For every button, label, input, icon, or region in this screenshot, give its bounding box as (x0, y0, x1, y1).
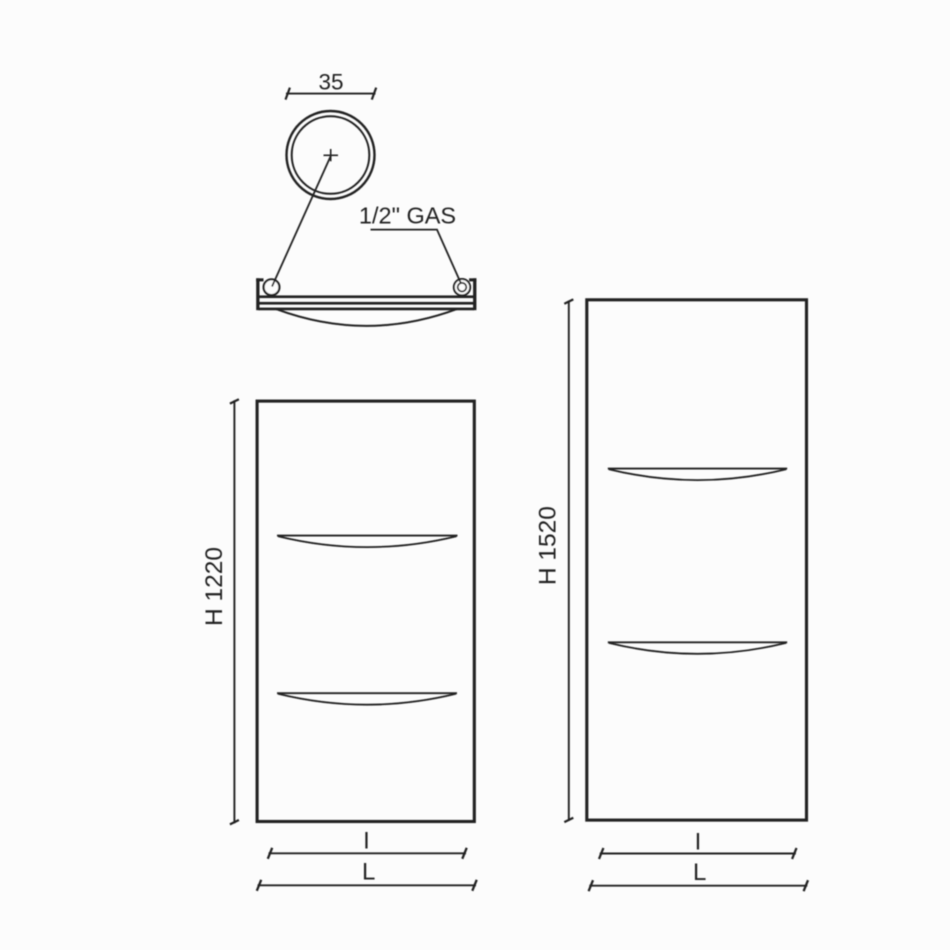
svg-text:H 1520: H 1520 (534, 506, 561, 585)
svg-text:35: 35 (318, 70, 343, 95)
svg-text:I: I (363, 827, 370, 854)
svg-text:H 1220: H 1220 (201, 547, 228, 626)
svg-text:I: I (695, 828, 702, 855)
svg-text:1/2" GAS: 1/2" GAS (359, 203, 456, 229)
svg-text:L: L (362, 859, 375, 886)
svg-text:L: L (693, 859, 706, 886)
